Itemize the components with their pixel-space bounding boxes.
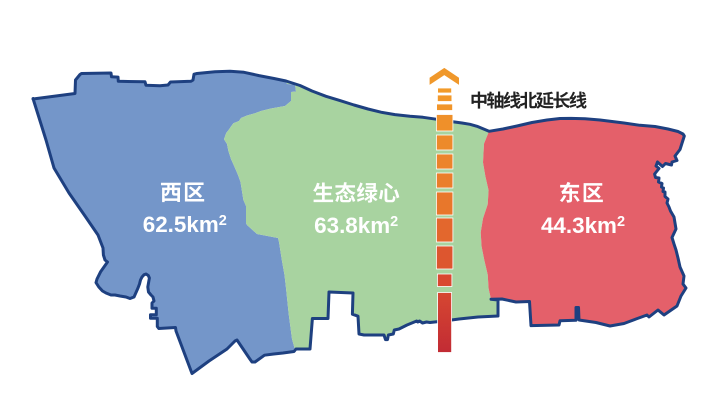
- svg-text:62.5km2: 62.5km2: [143, 212, 227, 237]
- svg-text:63.8km2: 63.8km2: [314, 213, 398, 238]
- svg-text:44.3km2: 44.3km2: [541, 213, 625, 238]
